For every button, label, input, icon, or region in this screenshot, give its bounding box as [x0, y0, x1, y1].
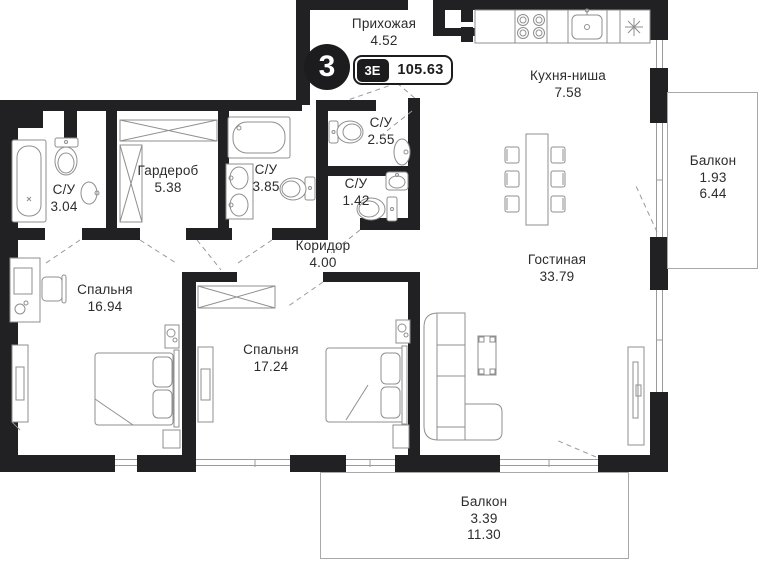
kitchen-counter: [475, 10, 650, 43]
apartment-type-label: 3Е: [357, 59, 389, 82]
room-name: С/У: [50, 182, 77, 199]
room-area-full: 6.44: [690, 186, 736, 203]
sofa-icon: [424, 313, 502, 440]
nightstand-icon: [393, 425, 409, 448]
bathtub-icon: [12, 140, 46, 222]
room-label-balcony-right: Балкон 1.93 6.44: [690, 153, 736, 203]
room-name: Гостиная: [528, 252, 586, 269]
room-name: Балкон: [690, 153, 736, 170]
room-label-hallway: Прихожая 4.52: [352, 16, 416, 49]
room-label-bedroom-2: Спальня 17.24: [243, 342, 299, 375]
room-name: Коридор: [296, 238, 351, 255]
room-area: 5.38: [138, 180, 199, 197]
room-area: 16.94: [77, 299, 133, 316]
bed-icon: [95, 350, 179, 427]
room-name: Кухня-ниша: [530, 68, 606, 85]
room-label-bedroom-1: Спальня 16.94: [77, 282, 133, 315]
room-area: 7.58: [530, 85, 606, 102]
sink-icon: [386, 172, 408, 190]
room-area: 17.24: [243, 359, 299, 376]
double-sink-icon: [226, 164, 253, 219]
toilet-icon: [55, 138, 78, 175]
sink-icon: [81, 182, 99, 204]
room-area: 3.85: [252, 179, 279, 196]
room-area-reduced: 1.93: [690, 170, 736, 187]
bed-icon: [326, 346, 407, 424]
wall-unit-icon: [396, 320, 410, 343]
wall-unit-icon: [165, 325, 179, 348]
room-area: 3.04: [50, 199, 77, 216]
room-label-bathroom-2-55: С/У 2.55: [367, 115, 394, 148]
room-label-bathroom-1-42: С/У 1.42: [342, 176, 369, 209]
room-area: 2.55: [367, 132, 394, 149]
chair-icon: [42, 275, 66, 303]
room-area: 4.00: [296, 255, 351, 272]
nightstand-icon: [163, 430, 180, 448]
coffee-table-icon: [478, 336, 496, 375]
room-area-reduced: 3.39: [461, 511, 507, 528]
room-label-bathroom-3-85: С/У 3.85: [252, 162, 279, 195]
radiator-icon: [198, 347, 213, 422]
bathtub-icon: [228, 117, 290, 158]
room-label-wardrobe: Гардероб 5.38: [138, 163, 199, 196]
room-count-badge: 3: [304, 44, 350, 90]
sink-icon: [394, 139, 410, 165]
room-name: С/У: [252, 162, 279, 179]
room-name: С/У: [367, 115, 394, 132]
tv-stand-icon: [628, 347, 644, 445]
apartment-type-pill: 3Е 105.63: [353, 55, 453, 85]
floor-plan: Прихожая 4.52 Кухня-ниша 7.58 С/У 3.04 Г…: [0, 0, 760, 563]
room-area: 33.79: [528, 269, 586, 286]
room-name: Спальня: [77, 282, 133, 299]
room-label-living-room: Гостиная 33.79: [528, 252, 586, 285]
room-label-bathroom-3-04: С/У 3.04: [50, 182, 77, 215]
desk-icon: [10, 258, 40, 322]
room-count-number: 3: [319, 50, 336, 84]
room-label-corridor: Коридор 4.00: [296, 238, 351, 271]
room-label-balcony-bottom: Балкон 3.39 11.30: [461, 494, 507, 544]
room-name: С/У: [342, 176, 369, 193]
room-area: 4.52: [352, 33, 416, 50]
room-name: Балкон: [461, 494, 507, 511]
total-area-value: 105.63: [390, 57, 451, 83]
radiator-icon: [12, 345, 28, 430]
room-label-kitchen-niche: Кухня-ниша 7.58: [530, 68, 606, 101]
wardrobe-rack-icon: [198, 286, 275, 308]
toilet-icon: [280, 177, 315, 200]
room-name: Спальня: [243, 342, 299, 359]
room-area: 1.42: [342, 193, 369, 210]
dining-table-icon: [526, 134, 548, 225]
toilet-icon: [329, 121, 363, 143]
room-area-full: 11.30: [461, 527, 507, 544]
room-name: Гардероб: [138, 163, 199, 180]
room-name: Прихожая: [352, 16, 416, 33]
